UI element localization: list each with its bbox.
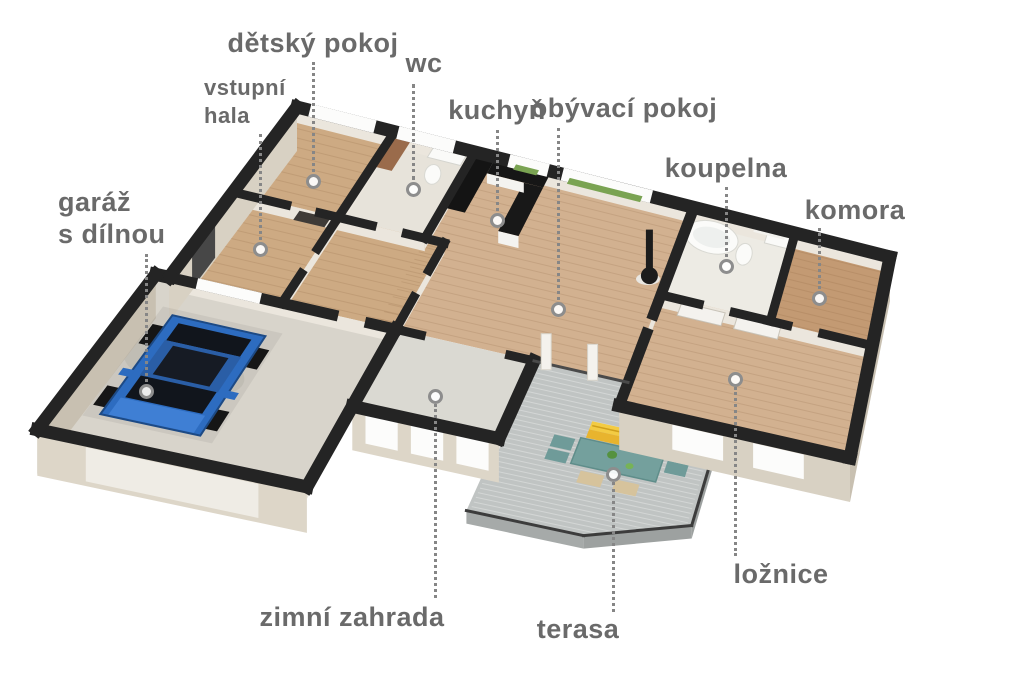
label-line-2: s dílnou bbox=[58, 218, 166, 250]
leader-line-detsky-pokoj bbox=[312, 62, 315, 172]
leader-line-koupelna bbox=[725, 187, 728, 257]
leader-line-vstupni-hala bbox=[259, 134, 262, 240]
room-label-komora: komora bbox=[805, 195, 906, 225]
room-label-detsky-pokoj: dětský pokoj bbox=[227, 28, 398, 58]
label-line-1: vstupní bbox=[204, 74, 286, 102]
room-label-koupelna: koupelna bbox=[665, 153, 788, 183]
leader-line-zimni-zahrada bbox=[434, 404, 437, 598]
label-line-2: hala bbox=[204, 102, 286, 130]
leader-line-garaz bbox=[145, 254, 148, 382]
room-label-wc: wc bbox=[405, 48, 442, 78]
room-marker-obyvaci-pokoj bbox=[551, 302, 566, 317]
room-marker-garaz bbox=[139, 384, 154, 399]
room-marker-loznice bbox=[728, 372, 743, 387]
leader-line-loznice bbox=[734, 387, 737, 556]
room-label-terasa: terasa bbox=[537, 614, 620, 644]
room-marker-koupelna bbox=[719, 259, 734, 274]
room-label-zimni-zahrada: zimní zahrada bbox=[259, 602, 444, 632]
room-marker-vstupni-hala bbox=[253, 242, 268, 257]
room-marker-wc bbox=[406, 182, 421, 197]
leader-line-terasa bbox=[612, 482, 615, 612]
leader-line-wc bbox=[412, 84, 415, 180]
leader-line-obyvaci-pokoj bbox=[557, 128, 560, 300]
leader-line-kuchyn bbox=[496, 130, 499, 211]
room-marker-terasa bbox=[606, 467, 621, 482]
room-marker-kuchyn bbox=[490, 213, 505, 228]
room-marker-komora bbox=[812, 291, 827, 306]
label-line-1: garáž bbox=[58, 186, 166, 218]
room-label-loznice: ložnice bbox=[733, 559, 828, 589]
room-label-obyvaci-pokoj: obývací pokoj bbox=[531, 93, 718, 123]
room-marker-zimni-zahrada bbox=[428, 389, 443, 404]
room-marker-detsky-pokoj bbox=[306, 174, 321, 189]
floor-plan-scene: dětský pokoj vstupní hala wc kuchyň obýv… bbox=[0, 0, 1024, 683]
leader-line-komora bbox=[818, 228, 821, 289]
room-label-vstupni-hala: vstupní hala bbox=[204, 74, 286, 130]
room-label-garaz-s-dilnou: garáž s dílnou bbox=[58, 186, 166, 250]
